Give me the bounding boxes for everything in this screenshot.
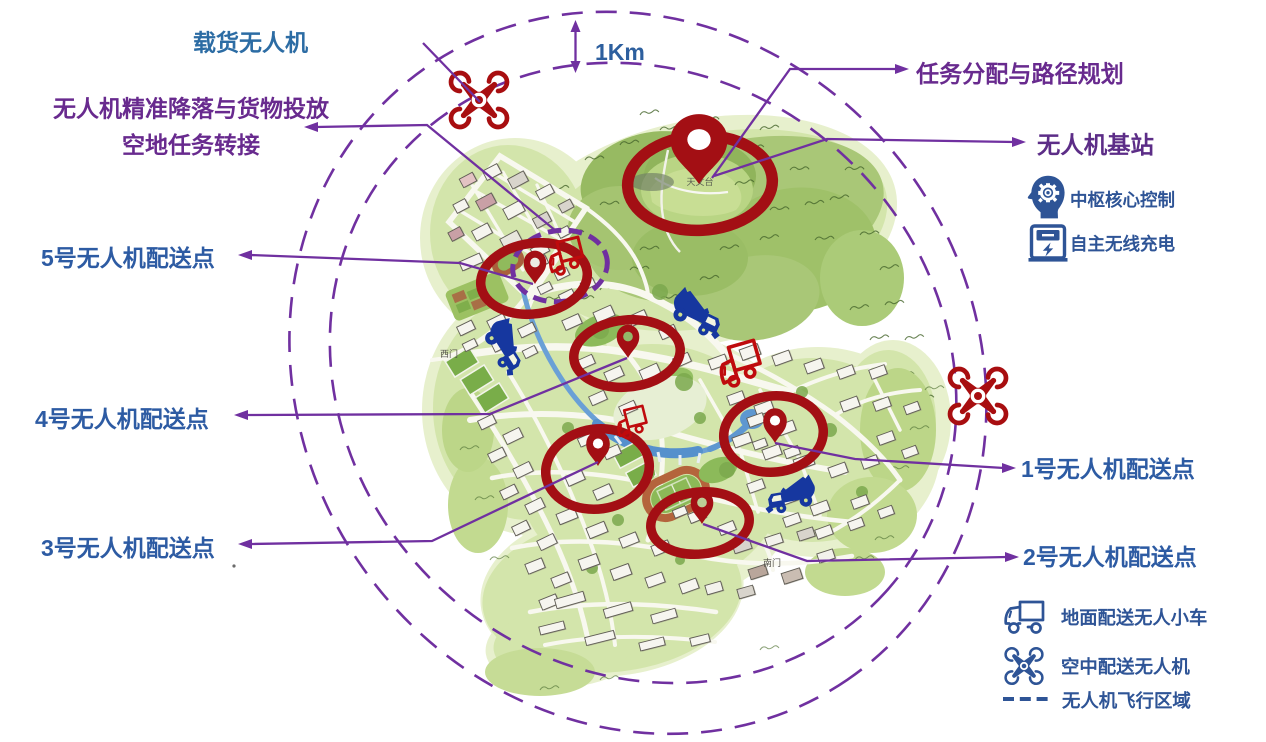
svg-text:无人机精准降落与货物投放: 无人机精准降落与货物投放 xyxy=(53,96,330,122)
svg-text:无人机飞行区域: 无人机飞行区域 xyxy=(1062,690,1191,711)
svg-text:自主无线充电: 自主无线充电 xyxy=(1070,234,1175,254)
svg-text:3号无人机配送点: 3号无人机配送点 xyxy=(41,535,215,561)
svg-text:无人机基站: 无人机基站 xyxy=(1037,132,1154,158)
svg-text:载货无人机: 载货无人机 xyxy=(193,30,308,56)
svg-text:1Km: 1Km xyxy=(595,39,645,65)
svg-text:地面配送无人小车: 地面配送无人小车 xyxy=(1061,607,1207,628)
svg-text:2号无人机配送点: 2号无人机配送点 xyxy=(1023,544,1197,570)
svg-text:南门: 南门 xyxy=(763,557,781,568)
svg-text:空中配送无人机: 空中配送无人机 xyxy=(1061,656,1190,677)
svg-text:空地任务转接: 空地任务转接 xyxy=(122,132,260,158)
svg-text:中枢核心控制: 中枢核心控制 xyxy=(1070,190,1175,210)
svg-text:4号无人机配送点: 4号无人机配送点 xyxy=(35,406,209,432)
svg-text:西门: 西门 xyxy=(440,348,458,359)
svg-text:任务分配与路径规划: 任务分配与路径规划 xyxy=(915,61,1124,87)
svg-text:5号无人机配送点: 5号无人机配送点 xyxy=(41,245,215,271)
svg-text:1号无人机配送点: 1号无人机配送点 xyxy=(1021,456,1195,482)
